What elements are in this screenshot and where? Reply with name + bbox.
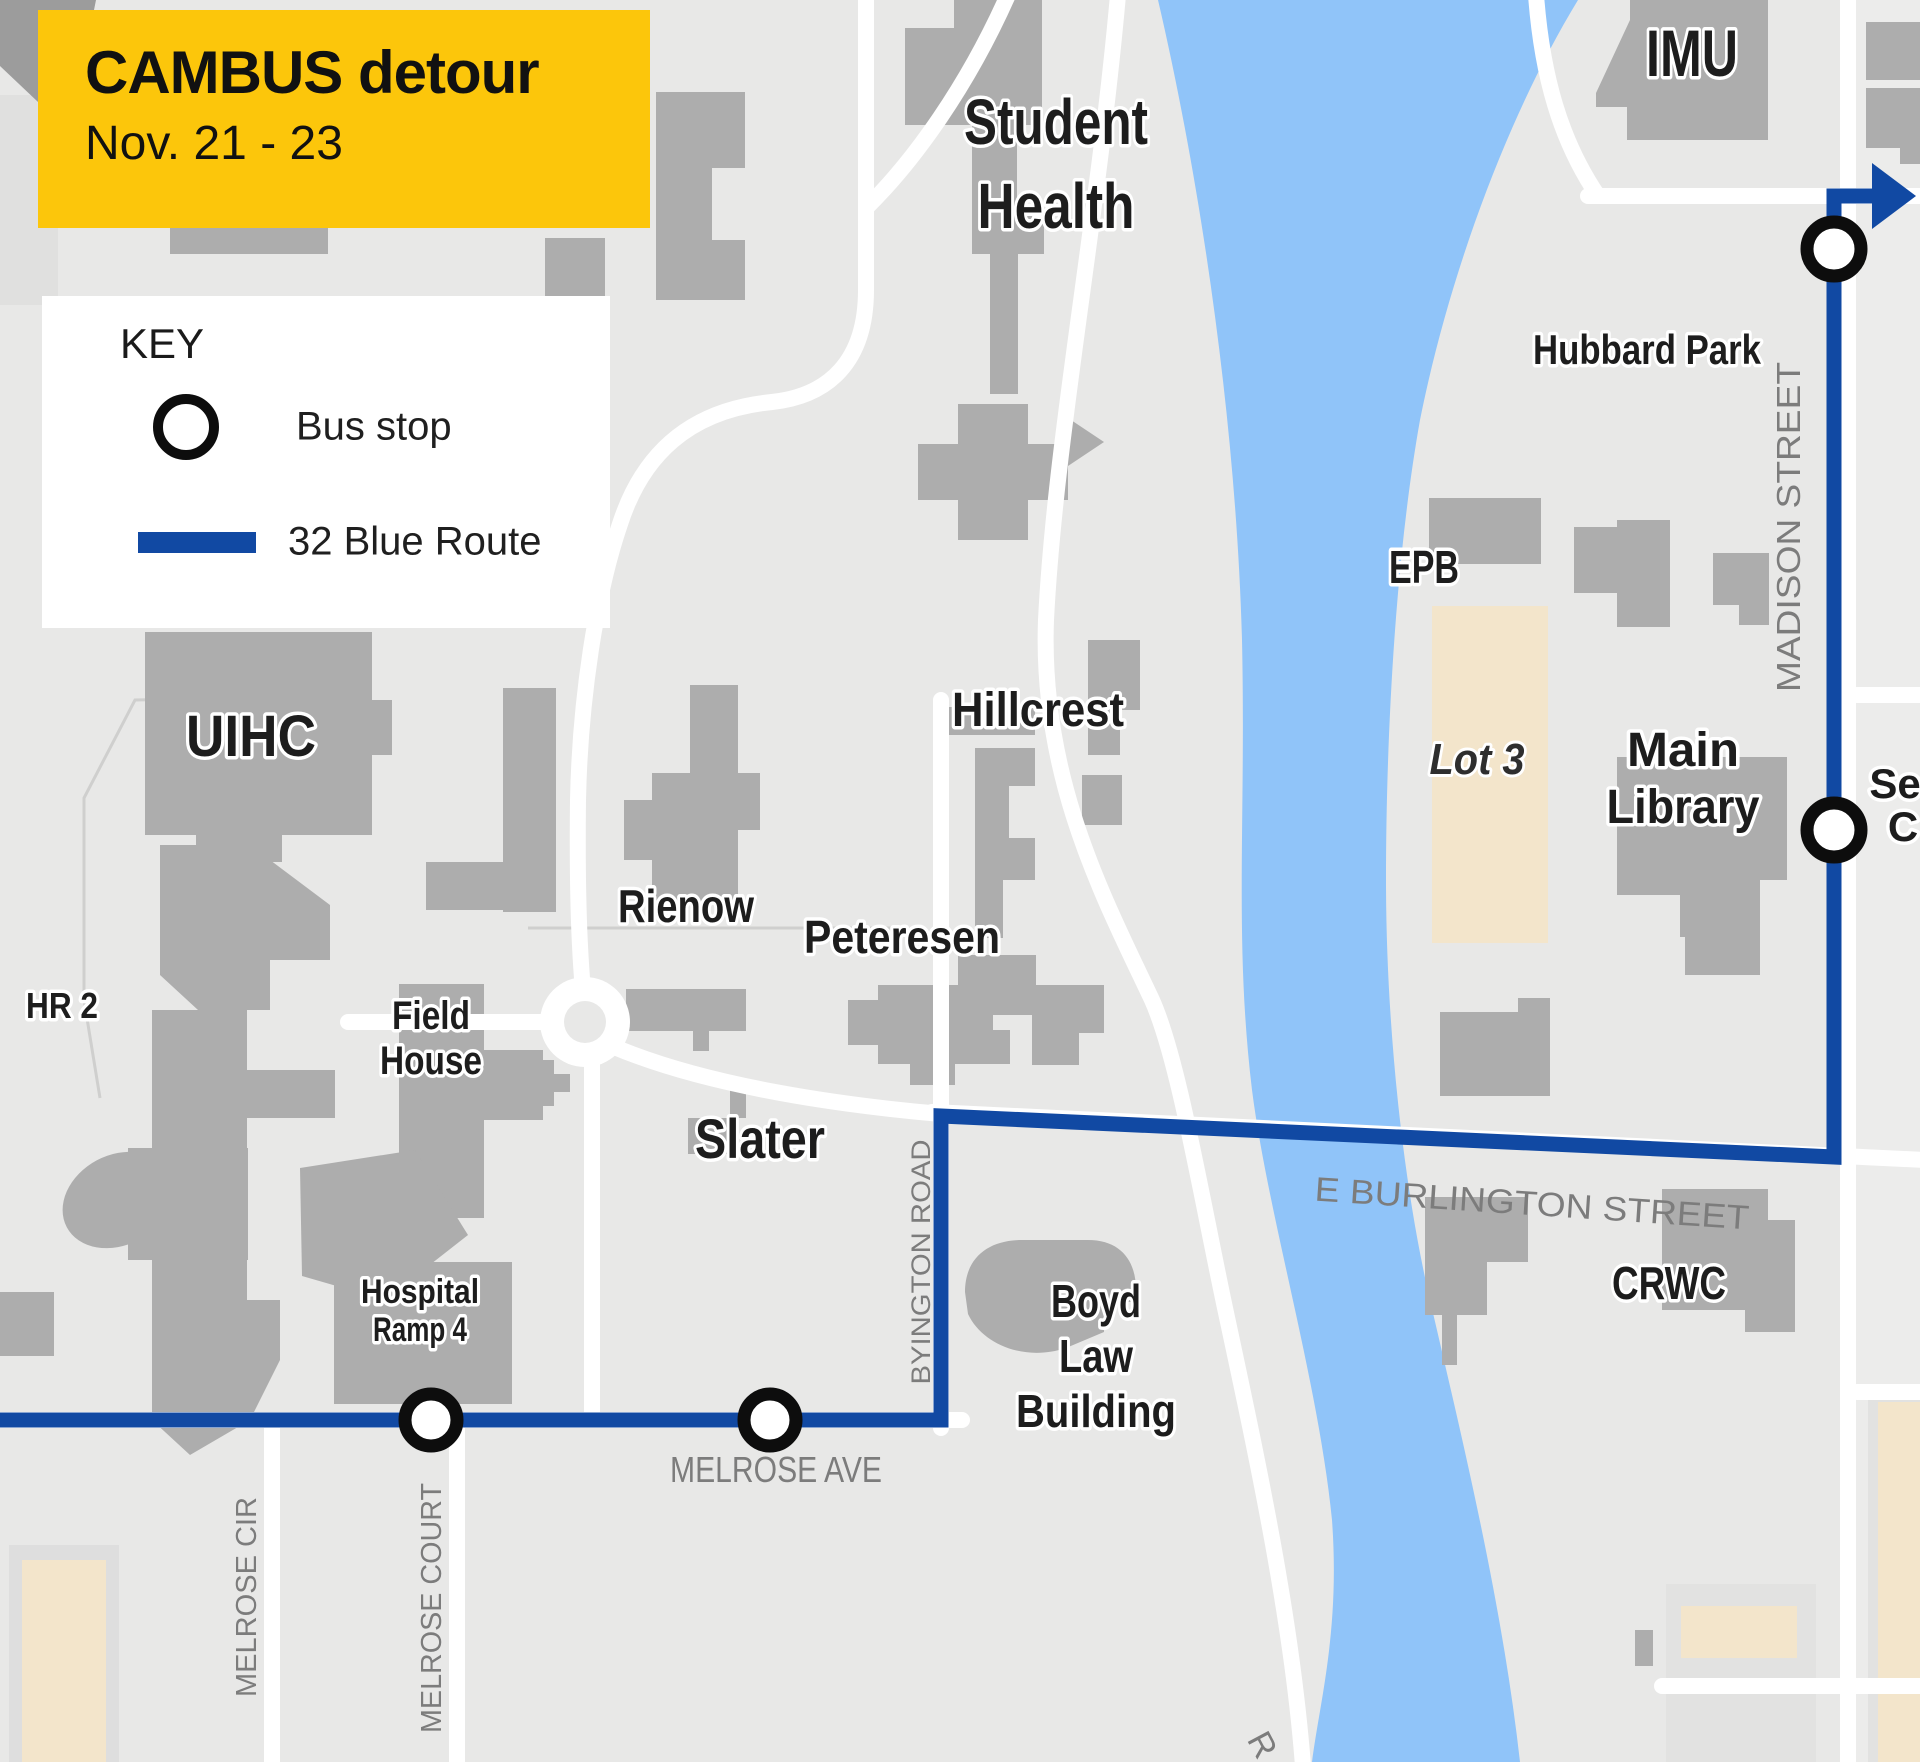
label-hospital-ramp-1: Hospital	[361, 1273, 479, 1311]
bus-stop-marker-imu	[1807, 222, 1861, 276]
label-epb: EPB	[1389, 541, 1459, 593]
detour-banner: CAMBUS detour Nov. 21 - 23	[38, 10, 650, 228]
label-seamans-partial-2: C	[1888, 803, 1918, 850]
route-legend-label: 32 Blue Route	[288, 520, 542, 565]
banner-title: CAMBUS detour	[85, 40, 650, 106]
bus-stop-marker-melrose-court	[405, 1394, 457, 1446]
street-label-melrose-court: MELROSE COURT	[416, 1483, 448, 1733]
label-student-health-2: Health	[978, 170, 1135, 242]
bus-stop-legend-icon	[153, 394, 219, 460]
label-uihc: UIHC	[186, 704, 316, 769]
banner-date-range: Nov. 21 - 23	[85, 116, 650, 171]
label-boyd-3: Building	[1016, 1385, 1176, 1437]
label-hubbard-park: Hubbard Park	[1533, 326, 1762, 373]
label-seamans-partial-1: Se	[1869, 760, 1920, 807]
label-boyd-2: Law	[1059, 1330, 1133, 1382]
label-lot3: Lot 3	[1430, 735, 1525, 784]
roundabout	[540, 977, 630, 1067]
street-label-melrose-ave: MELROSE AVE	[670, 1449, 882, 1490]
label-field-house-2: House	[380, 1039, 482, 1083]
key-title: KEY	[120, 320, 204, 368]
label-hospital-ramp-2: Ramp 4	[373, 1311, 467, 1349]
label-hillcrest: Hillcrest	[952, 684, 1124, 737]
map-key: KEY Bus stop 32 Blue Route	[42, 296, 610, 628]
label-field-house-1: Field	[392, 994, 470, 1038]
bus-stop-marker-melrose-ave	[744, 1394, 796, 1446]
street-label-melrose-cir: MELROSE CIR	[231, 1497, 263, 1697]
cambus-detour-map: MADISON STREET E BURLINGTON STREET BYING…	[0, 0, 1920, 1762]
bus-stop-marker-main-library	[1807, 803, 1861, 857]
label-imu: IMU	[1646, 16, 1738, 90]
street-label-madison: MADISON STREET	[1770, 362, 1807, 692]
map-canvas: MADISON STREET E BURLINGTON STREET BYING…	[0, 0, 1920, 1762]
label-main-library-1: Main	[1627, 724, 1739, 777]
street-label-byington: BYINGTON ROAD	[906, 1140, 936, 1385]
label-student-health-1: Student	[964, 86, 1148, 158]
label-peteresen: Peteresen	[804, 911, 1000, 963]
label-boyd-1: Boyd	[1051, 1275, 1141, 1327]
route-legend-swatch	[138, 532, 256, 553]
label-crwc: CRWC	[1612, 1257, 1726, 1309]
label-main-library-2: Library	[1607, 781, 1760, 834]
bus-stop-legend-label: Bus stop	[296, 405, 452, 450]
label-rienow: Rienow	[618, 880, 754, 932]
label-hr2: HR 2	[26, 985, 98, 1026]
label-slater: Slater	[695, 1107, 825, 1170]
